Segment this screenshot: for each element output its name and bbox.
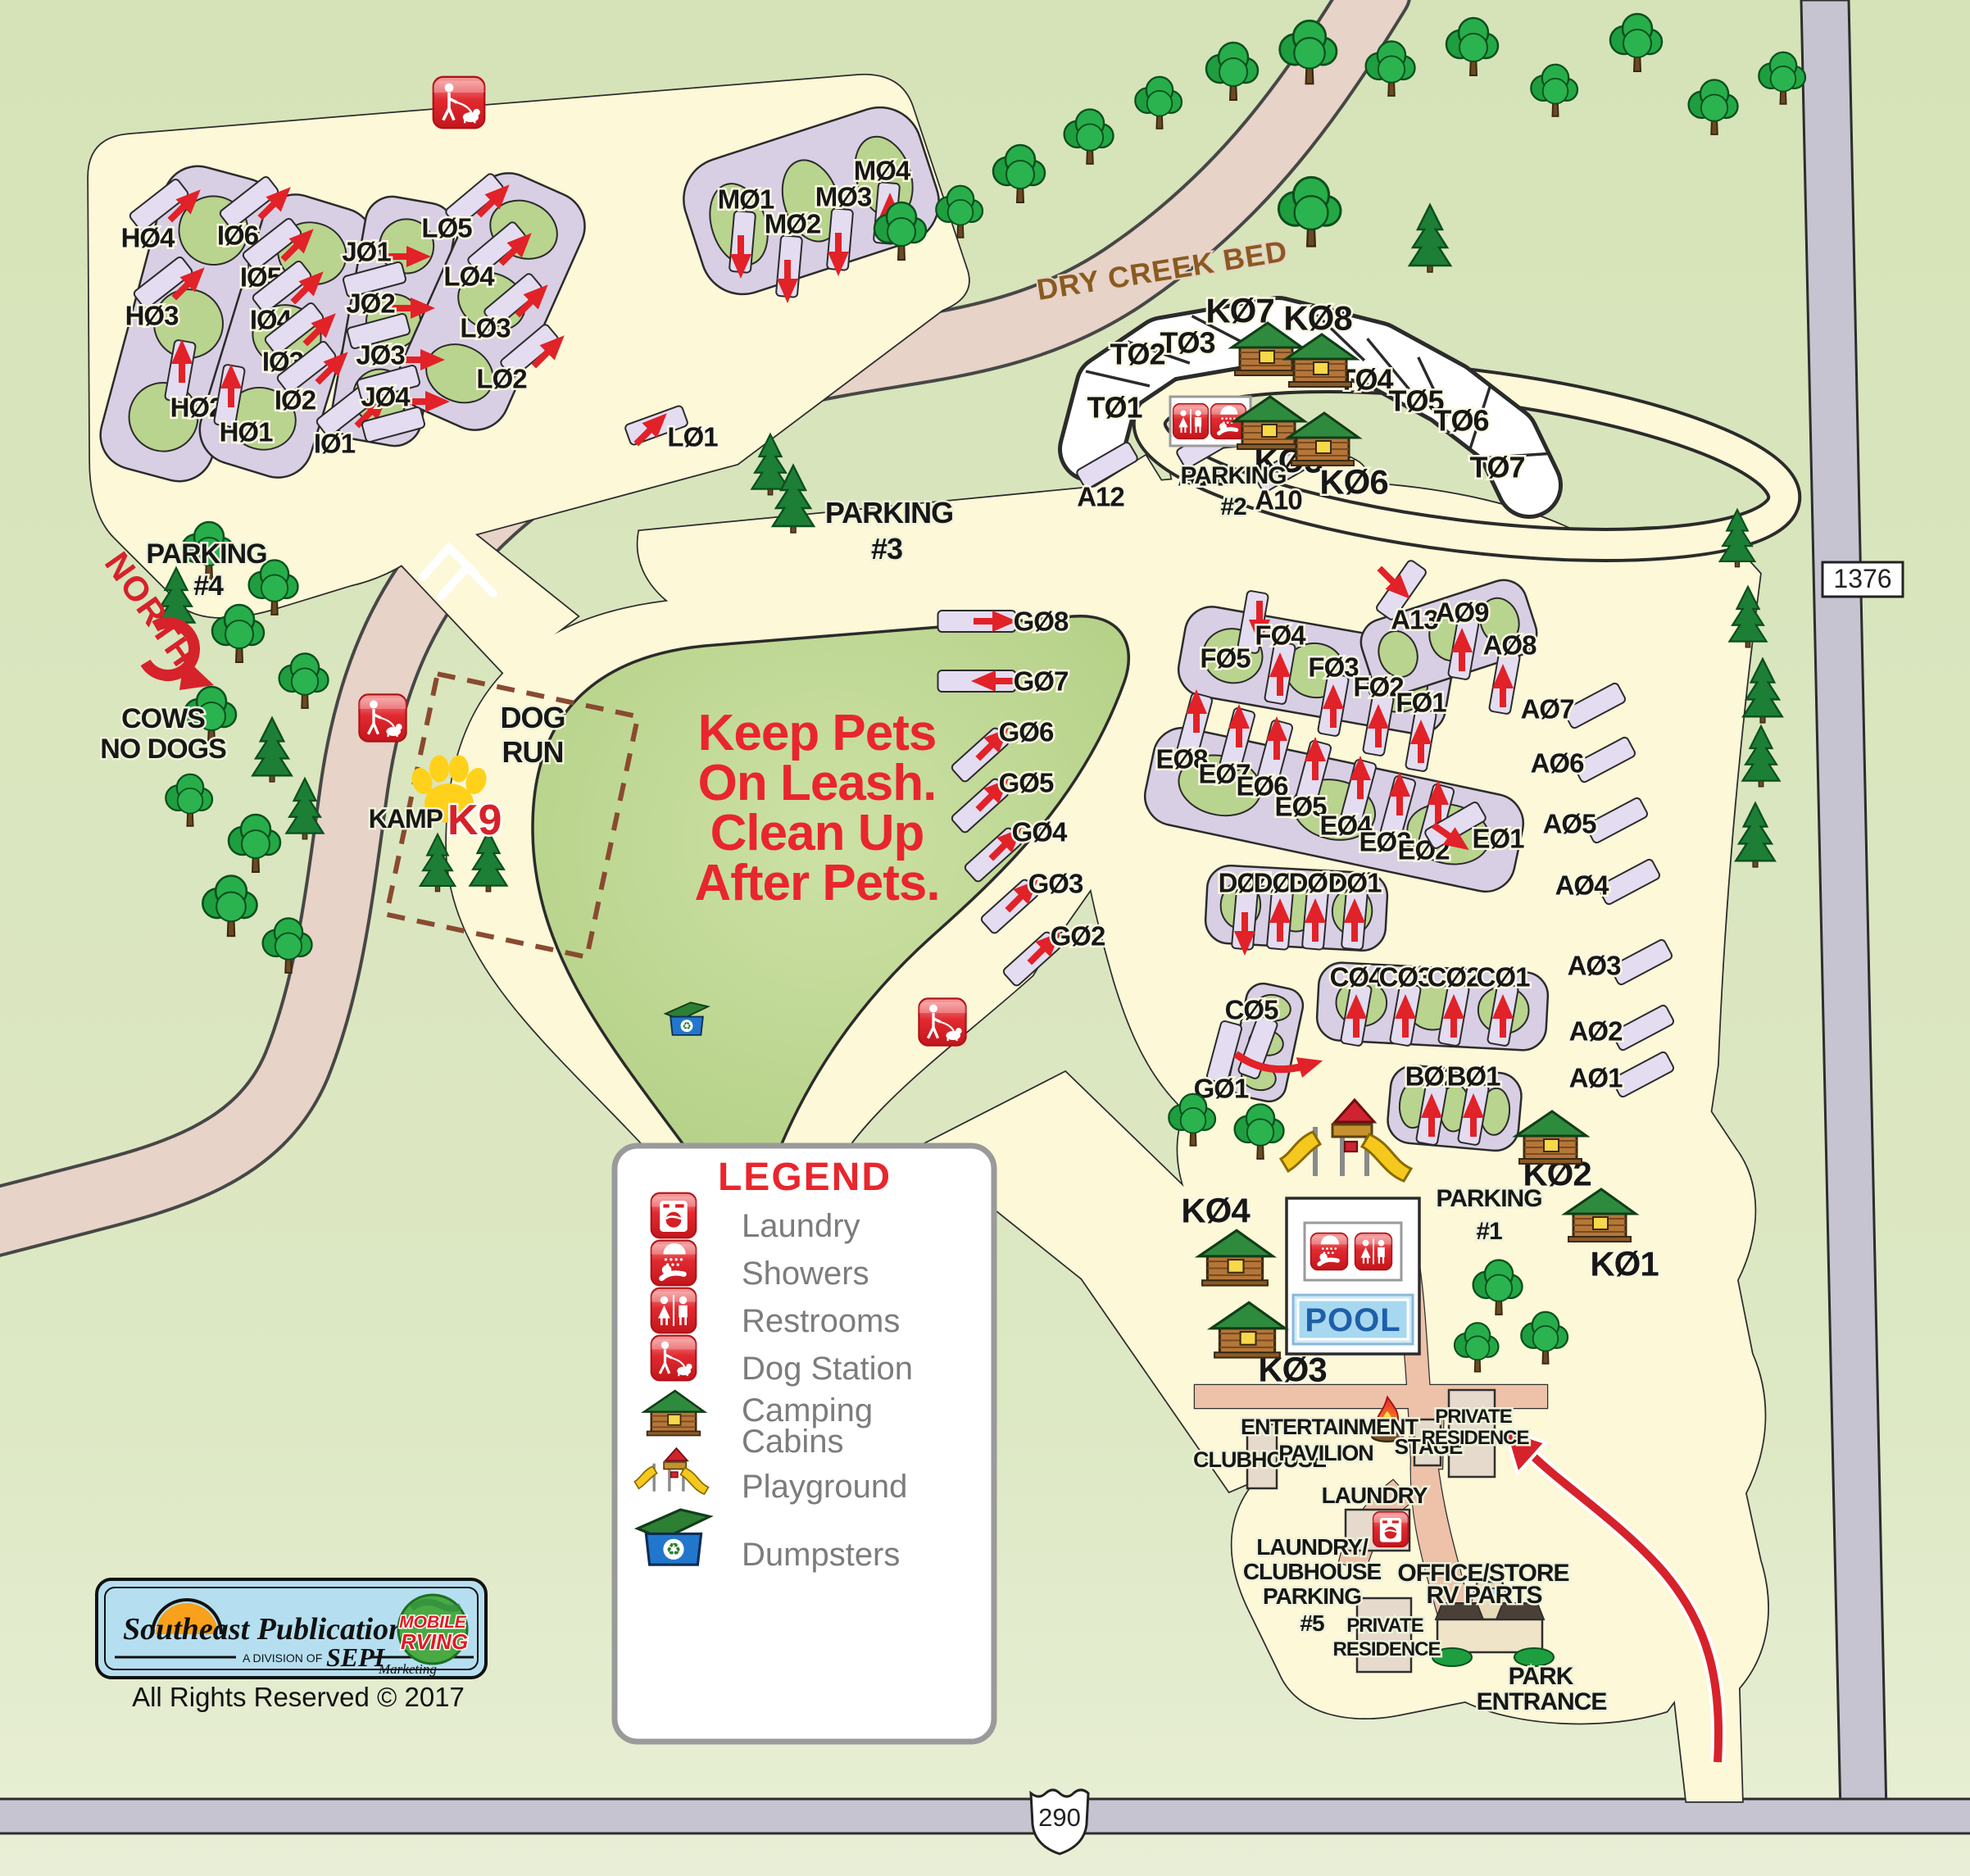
parking5-label-4: #5 xyxy=(1300,1610,1324,1636)
site-label-F05: FØ5 xyxy=(1200,643,1251,674)
cows-label-1: COWS xyxy=(121,703,205,734)
legend-label: Laundry xyxy=(742,1208,860,1244)
site-label-M04: MØ4 xyxy=(854,156,911,186)
notice-1: Keep Pets xyxy=(698,705,937,761)
site-label-H03: HØ3 xyxy=(125,301,179,331)
site-label-H04: HØ4 xyxy=(121,223,176,253)
site-label-M03: MØ3 xyxy=(815,182,872,212)
campground-map-page: ♻ xyxy=(0,0,1970,1876)
site-label-G05: GØ5 xyxy=(999,768,1054,798)
mobile-rving-logo: MOBILE RVING xyxy=(398,1595,468,1664)
site-label-H01: HØ1 xyxy=(220,417,274,447)
site-label-A08: AØ8 xyxy=(1483,630,1537,661)
shower-icon xyxy=(651,1241,697,1286)
division-label: A DIVISION OF xyxy=(243,1651,322,1665)
site-label-T06: TØ6 xyxy=(1433,404,1488,438)
site-label-L02: LØ2 xyxy=(476,364,527,394)
site-label-T02: TØ2 xyxy=(1110,338,1164,371)
site-label-L04: LØ4 xyxy=(443,261,495,292)
site-label-I01: IØ1 xyxy=(314,429,356,459)
site-label-E01: EØ1 xyxy=(1472,824,1524,854)
site-label-A12: A12 xyxy=(1077,482,1124,512)
site-label-G06: GØ6 xyxy=(999,717,1054,747)
site-label-A05: AØ5 xyxy=(1543,809,1597,839)
site-label-C04: CØ4 xyxy=(1330,962,1385,993)
site-label-D01: DØ1 xyxy=(1328,868,1382,898)
kamp-label: KAMP xyxy=(369,804,443,834)
road-290 xyxy=(0,1799,1970,1833)
site-label-G03: GØ3 xyxy=(1028,869,1083,899)
laundry-label: LAUNDRY xyxy=(1322,1483,1428,1508)
legend-title: LEGEND xyxy=(718,1156,892,1199)
site-label-A01: AØ1 xyxy=(1569,1063,1623,1093)
site-label-L03: LØ3 xyxy=(460,313,511,343)
site-label-A03: AØ3 xyxy=(1568,951,1622,981)
site-label-J02: JØ2 xyxy=(346,288,395,319)
private-res-n-label-1: PRIVATE xyxy=(1435,1406,1512,1428)
notice-2: On Leash. xyxy=(698,755,937,811)
legend-label: Showers xyxy=(742,1256,869,1292)
site-label-K06: KØ6 xyxy=(1319,463,1387,502)
site-label-J04: JØ4 xyxy=(361,382,411,412)
site-label-L05: LØ5 xyxy=(421,213,472,243)
legend-label: Playground xyxy=(742,1469,907,1505)
site-label-A02: AØ2 xyxy=(1569,1016,1623,1047)
site-label-T07: TØ7 xyxy=(1469,451,1524,484)
cows-label-2: NO DOGS xyxy=(100,734,226,765)
site-label-J03: JØ3 xyxy=(356,340,405,370)
site-label-T01: TØ1 xyxy=(1087,391,1142,425)
legend-label: Restrooms xyxy=(742,1303,900,1339)
brand-label: Southeast Publications xyxy=(123,1612,418,1647)
site-label-K08: KØ8 xyxy=(1283,299,1352,338)
parking1-label-1: PARKING xyxy=(1436,1185,1541,1212)
site-label-C01: CØ1 xyxy=(1477,962,1531,993)
sepi-label: SEPI xyxy=(326,1642,386,1672)
notice-3: Clean Up xyxy=(710,805,924,861)
laundry-icon xyxy=(651,1193,697,1238)
notice-4: After Pets. xyxy=(694,855,939,911)
pavilion-label-1: ENTERTAINMENT xyxy=(1241,1415,1418,1439)
site-label-A07: AØ7 xyxy=(1521,694,1574,725)
parking5-label-1: LAUNDRY/ xyxy=(1256,1534,1369,1560)
private-res-s-label-1: PRIVATE xyxy=(1346,1615,1423,1637)
site-label-G04: GØ4 xyxy=(1012,817,1068,847)
site-label-K01: KØ1 xyxy=(1590,1245,1659,1283)
svg-text:RVING: RVING xyxy=(401,1629,468,1654)
rights-label: All Rights Reserved © 2017 xyxy=(132,1682,465,1712)
site-label-A04: AØ4 xyxy=(1555,870,1610,901)
parking2-label-2: #2 xyxy=(1220,493,1246,520)
parking3-label-2: #3 xyxy=(871,532,902,566)
parking1-label-2: #1 xyxy=(1476,1218,1502,1245)
site-label-G08: GØ8 xyxy=(1014,606,1069,637)
site-label-F04: FØ4 xyxy=(1255,620,1306,651)
site-label-I02: IØ2 xyxy=(275,385,316,416)
legend-label: Dumpsters xyxy=(742,1537,900,1573)
parking3-label-1: PARKING xyxy=(825,496,953,529)
site-label-L01: LØ1 xyxy=(667,422,718,452)
site-label-C03: CØ3 xyxy=(1379,962,1433,993)
k9-label: K9 xyxy=(447,797,502,844)
restroom-icon xyxy=(651,1288,697,1333)
parking4-label-2: #4 xyxy=(193,570,224,602)
legend-label: Dog Station xyxy=(742,1351,913,1387)
park-entrance-label-2: ENTRANCE xyxy=(1477,1688,1607,1715)
site-label-A10: A10 xyxy=(1255,485,1302,516)
site-label-B01: BØ1 xyxy=(1447,1061,1501,1092)
pool-label: POOL xyxy=(1305,1302,1400,1338)
site-label-A13: A13 xyxy=(1391,605,1438,635)
pavilion-label-2: PAVILION xyxy=(1278,1441,1373,1465)
svg-text:290: 290 xyxy=(1038,1803,1081,1832)
site-label-K04: KØ4 xyxy=(1181,1192,1251,1230)
private-res-n-label-2: RESIDENCE xyxy=(1421,1427,1529,1449)
site-label-T03: TØ3 xyxy=(1160,326,1214,360)
site-label-A09: AØ9 xyxy=(1436,597,1490,628)
site-label-G02: GØ2 xyxy=(1051,921,1105,952)
parking4-label-1: PARKING xyxy=(146,538,266,570)
dog-run-label-1: DOG xyxy=(500,701,565,734)
site-label-C02: CØ2 xyxy=(1428,962,1482,993)
campground-map: ♻ xyxy=(0,0,1970,1876)
site-label-A06: AØ6 xyxy=(1531,748,1585,779)
office-label-2: RV PARTS xyxy=(1427,1582,1542,1609)
site-label-G07: GØ7 xyxy=(1014,666,1069,697)
parking5-label-2: CLUBHOUSE xyxy=(1243,1559,1382,1584)
park-entrance-label-1: PARK xyxy=(1509,1663,1574,1690)
legend-label: Cabins xyxy=(742,1424,844,1460)
route-1376-sign: 1376 xyxy=(1822,562,1903,597)
parking2-label-1: PARKING xyxy=(1180,462,1286,489)
site-label-F01: FØ1 xyxy=(1396,688,1446,718)
dog-run-label-2: RUN xyxy=(502,735,564,769)
site-label-C05: CØ5 xyxy=(1225,995,1279,1025)
publisher-logo: Southeast Publications A DIVISION OF SEP… xyxy=(97,1579,486,1712)
site-label-M02: MØ2 xyxy=(765,209,821,239)
svg-text:1376: 1376 xyxy=(1833,564,1891,593)
parking5-label-3: PARKING xyxy=(1263,1583,1361,1609)
site-label-J01: JØ1 xyxy=(342,237,391,267)
dog-station-icon xyxy=(651,1336,697,1381)
private-res-s-label-2: RESIDENCE xyxy=(1332,1638,1441,1660)
site-label-F03: FØ3 xyxy=(1308,652,1359,683)
